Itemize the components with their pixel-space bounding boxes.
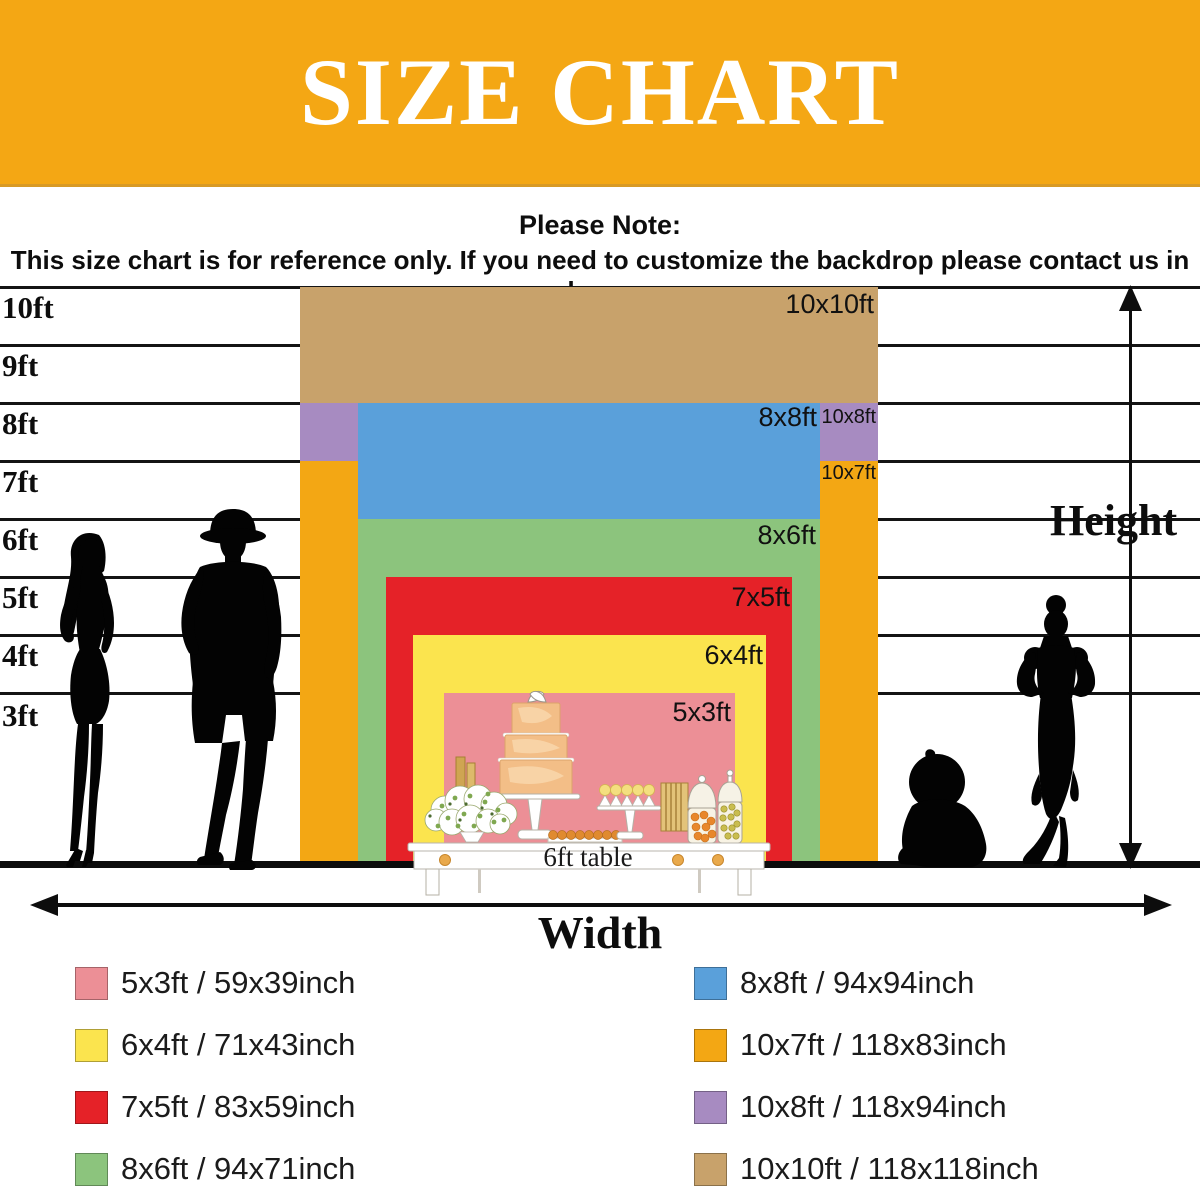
legend-label-7x5ft: 7x5ft / 83x59inch [121, 1089, 355, 1125]
legend-item-8x6ft: 8x6ft / 94x71inch [75, 1151, 355, 1187]
straw-bundle [661, 783, 688, 831]
table: 6ft table [408, 842, 770, 895]
legend-swatch-10x8ft [694, 1091, 727, 1124]
tick-6ft: 6ft [2, 522, 38, 558]
width-axis-label: Width [400, 906, 800, 959]
height-arrow [1117, 285, 1144, 869]
legend-swatch-10x7ft [694, 1029, 727, 1062]
height-axis-label: Height [1050, 495, 1177, 546]
legend-swatch-8x6ft [75, 1153, 108, 1186]
legend-item-7x5ft: 7x5ft / 83x59inch [75, 1089, 355, 1125]
label-10x8ft: 10x8ft [822, 406, 876, 429]
dessert-table-illustration: 6ft table [400, 676, 780, 898]
silhouette-baby-right [896, 748, 992, 868]
dessert-tray [548, 831, 622, 843]
legend-item-8x8ft: 8x8ft / 94x94inch [694, 965, 974, 1001]
candy-jar-yellow [718, 770, 742, 843]
label-10x10ft: 10x10ft [785, 289, 874, 320]
legend-item-10x8ft: 10x8ft / 118x94inch [694, 1089, 1007, 1125]
legend-swatch-10x10ft [694, 1153, 727, 1186]
tick-10ft: 10ft [2, 290, 54, 326]
table-size-label: 6ft table [543, 842, 632, 872]
label-8x8ft: 8x8ft [758, 402, 817, 433]
tick-9ft: 9ft [2, 348, 38, 384]
note-heading: Please Note: [0, 210, 1200, 241]
legend-swatch-5x3ft [75, 967, 108, 1000]
tick-7ft: 7ft [2, 464, 38, 500]
legend-swatch-6x4ft [75, 1029, 108, 1062]
tick-3ft: 3ft [2, 698, 38, 734]
silhouette-woman-right [1008, 594, 1100, 870]
header-banner: SIZE CHART [0, 0, 1200, 187]
legend-label-10x7ft: 10x7ft / 118x83inch [740, 1027, 1007, 1063]
label-8x6ft: 8x6ft [757, 520, 816, 551]
label-7x5ft: 7x5ft [731, 582, 790, 613]
size-chart-infographic: SIZE CHART Please Note: This size chart … [0, 0, 1200, 1200]
legend-item-5x3ft: 5x3ft / 59x39inch [75, 965, 355, 1001]
legend-item-6x4ft: 6x4ft / 71x43inch [75, 1027, 355, 1063]
label-10x7ft: 10x7ft [822, 462, 876, 485]
silhouette-woman-left [36, 531, 140, 867]
tick-5ft: 5ft [2, 580, 38, 616]
legend-item-10x10ft: 10x10ft / 118x118inch [694, 1151, 1039, 1187]
legend-item-10x7ft: 10x7ft / 118x83inch [694, 1027, 1007, 1063]
legend-swatch-7x5ft [75, 1091, 108, 1124]
legend-label-5x3ft: 5x3ft / 59x39inch [121, 965, 355, 1001]
legend-label-6x4ft: 6x4ft / 71x43inch [121, 1027, 355, 1063]
legend-label-10x10ft: 10x10ft / 118x118inch [740, 1151, 1039, 1187]
silhouette-man-left [160, 505, 300, 870]
legend-label-8x8ft: 8x8ft / 94x94inch [740, 965, 974, 1001]
legend-label-8x6ft: 8x6ft / 94x71inch [121, 1151, 355, 1187]
legend-swatch-8x8ft [694, 967, 727, 1000]
legend-label-10x8ft: 10x8ft / 118x94inch [740, 1089, 1007, 1125]
label-6x4ft: 6x4ft [704, 640, 763, 671]
tick-8ft: 8ft [2, 406, 38, 442]
tick-4ft: 4ft [2, 638, 38, 674]
candy-jar-orange [688, 776, 716, 844]
page-title: SIZE CHART [0, 0, 1200, 184]
